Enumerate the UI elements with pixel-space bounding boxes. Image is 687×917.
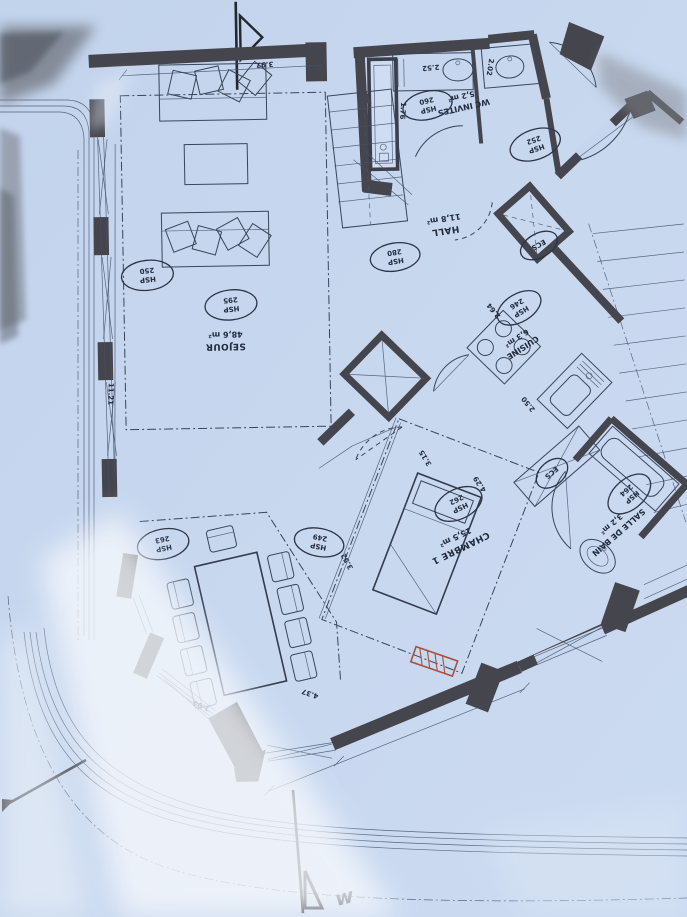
label-sejour: SEJOUR xyxy=(205,341,245,352)
hsp-terrace-label: HSP xyxy=(139,275,156,285)
hsp-terrace-value: 250 xyxy=(139,266,154,275)
wall-corner-block xyxy=(305,42,327,81)
hsp-sejour-value: 295 xyxy=(223,295,238,304)
dim-top: 3.97 xyxy=(256,60,274,69)
floor-plan-canvas: SEJOUR 48,6 m² HALL 11,8 m² WC INVITES 5… xyxy=(0,0,687,917)
dim-left: 11.21 xyxy=(106,383,114,405)
dim-wc-counter: 2.52 xyxy=(422,63,440,72)
dim-wc-width: 1.76 xyxy=(398,102,407,120)
scanned-floor-plan-page: SEJOUR 48,6 m² HALL 11,8 m² WC INVITES 5… xyxy=(0,0,687,917)
label-sejour-area: 48,6 m² xyxy=(208,330,243,340)
hsp-sejour-label: HSP xyxy=(223,304,240,314)
